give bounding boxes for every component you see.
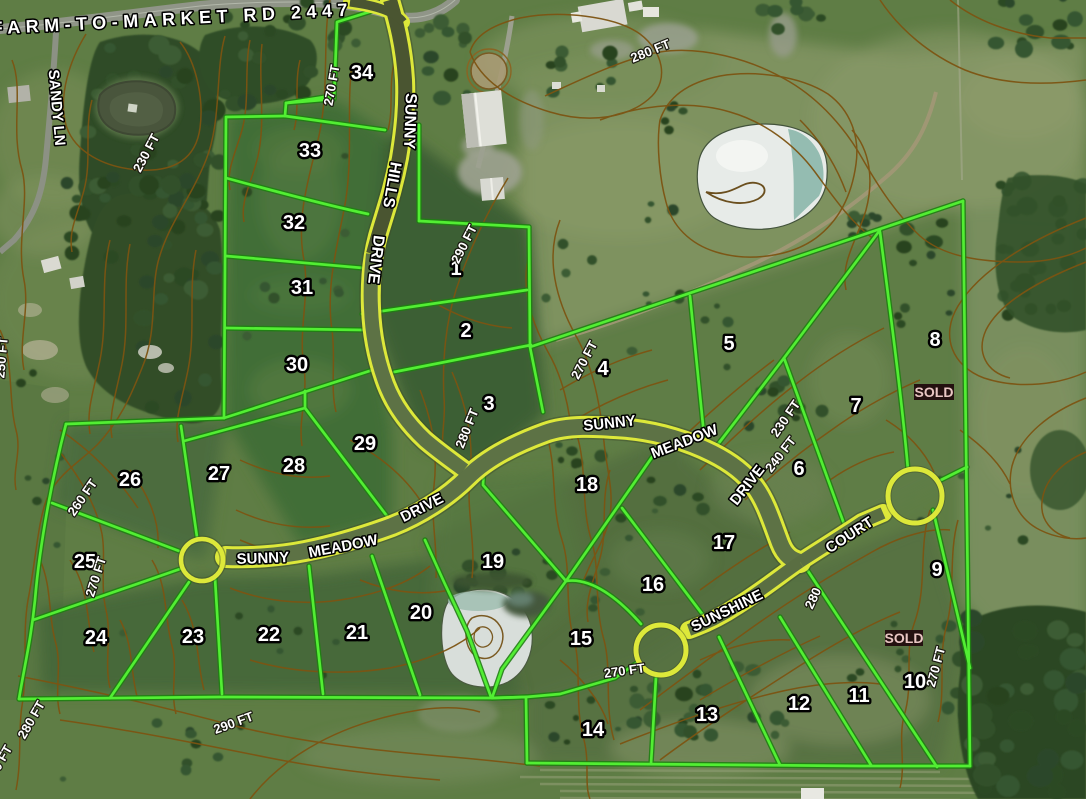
svg-text:28: 28 — [283, 455, 305, 477]
svg-text:11: 11 — [848, 685, 869, 707]
svg-text:31: 31 — [291, 277, 313, 299]
svg-text:13: 13 — [696, 704, 718, 726]
svg-text:SOLD: SOLD — [885, 630, 924, 646]
svg-text:3: 3 — [483, 393, 494, 415]
svg-text:14: 14 — [582, 719, 605, 741]
svg-text:9: 9 — [931, 559, 942, 581]
svg-text:18: 18 — [576, 474, 598, 496]
svg-text:27: 27 — [208, 463, 230, 485]
svg-text:12: 12 — [788, 693, 810, 715]
svg-text:21: 21 — [346, 622, 368, 644]
svg-text:24: 24 — [85, 627, 108, 649]
svg-text:6: 6 — [793, 458, 804, 480]
svg-text:4: 4 — [597, 358, 609, 380]
svg-text:34: 34 — [351, 62, 374, 84]
svg-text:15: 15 — [570, 628, 592, 650]
svg-text:32: 32 — [283, 212, 305, 234]
svg-text:10: 10 — [904, 671, 926, 693]
svg-text:SOLD: SOLD — [915, 384, 954, 400]
svg-text:23: 23 — [182, 626, 204, 648]
svg-text:30: 30 — [286, 354, 308, 376]
svg-text:19: 19 — [482, 551, 504, 573]
svg-text:17: 17 — [713, 532, 735, 554]
svg-text:2: 2 — [460, 320, 471, 342]
svg-text:26: 26 — [119, 469, 141, 491]
svg-text:SUNNY: SUNNY — [236, 549, 289, 568]
svg-text:16: 16 — [642, 574, 664, 596]
svg-text:22: 22 — [258, 624, 280, 646]
svg-text:7: 7 — [850, 395, 861, 417]
svg-text:29: 29 — [354, 433, 376, 455]
svg-text:8: 8 — [929, 329, 940, 351]
svg-text:33: 33 — [299, 140, 321, 162]
svg-text:5: 5 — [723, 333, 734, 355]
svg-text:SUNNY: SUNNY — [400, 93, 419, 150]
svg-text:20: 20 — [410, 602, 432, 624]
